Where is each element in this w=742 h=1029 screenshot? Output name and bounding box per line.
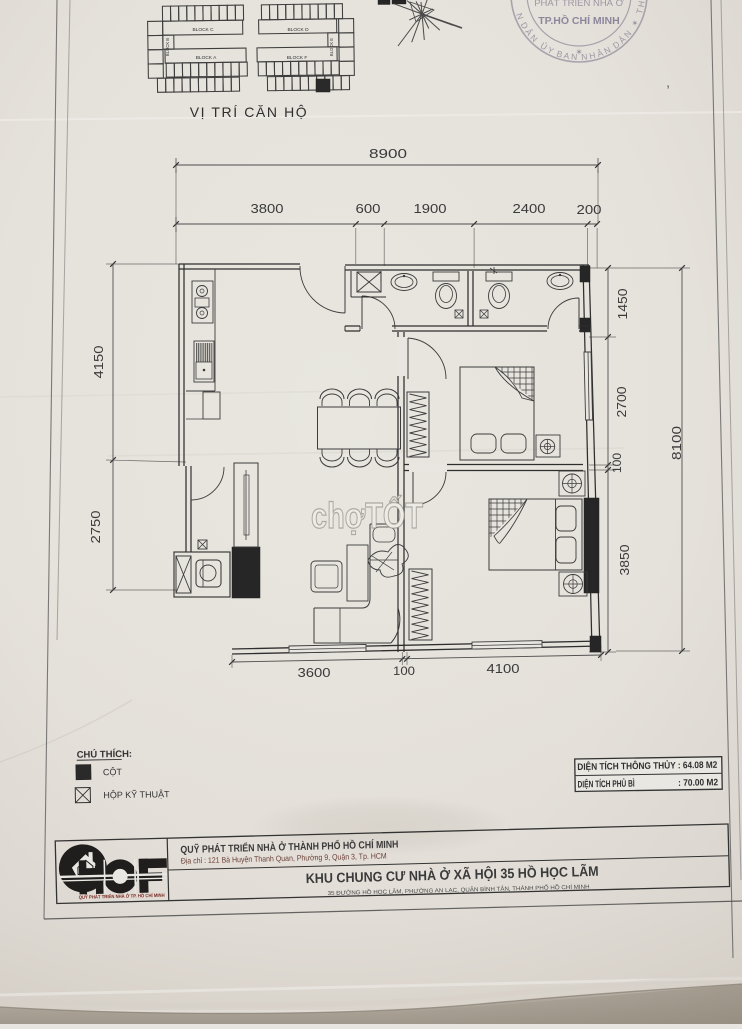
svg-text:8100: 8100 bbox=[669, 426, 684, 460]
svg-text:2400: 2400 bbox=[513, 201, 546, 216]
svg-text:3800: 3800 bbox=[251, 201, 284, 216]
svg-text:BLOCK F: BLOCK F bbox=[287, 55, 308, 61]
svg-text:’: ’ bbox=[666, 82, 669, 98]
svg-text:BLOCK E: BLOCK E bbox=[329, 38, 334, 56]
svg-text:TP.HỒ CHÍ MINH: TP.HỒ CHÍ MINH bbox=[538, 14, 619, 27]
svg-text:✶: ✶ bbox=[575, 47, 583, 57]
svg-text:: 70.00 M2: : 70.00 M2 bbox=[678, 776, 718, 788]
svg-text:4150: 4150 bbox=[91, 346, 106, 379]
svg-text:8900: 8900 bbox=[369, 146, 407, 161]
svg-text:2700: 2700 bbox=[615, 386, 629, 417]
svg-text:BLOCK A: BLOCK A bbox=[196, 55, 217, 61]
svg-text:BLOCK B: BLOCK B bbox=[165, 38, 170, 56]
svg-text:100: 100 bbox=[393, 664, 415, 678]
svg-text:1450: 1450 bbox=[616, 288, 630, 319]
svg-text:CHÚ THÍCH:: CHÚ THÍCH: bbox=[77, 748, 133, 761]
svg-text:3850: 3850 bbox=[618, 544, 632, 575]
svg-text:DIỆN TÍCH THÔNG THỦY : 64.08 M: DIỆN TÍCH THÔNG THỦY : 64.08 M2 bbox=[577, 759, 717, 772]
svg-text:VỊ TRÍ CĂN HỘ: VỊ TRÍ CĂN HỘ bbox=[190, 104, 309, 120]
svg-text:1900: 1900 bbox=[414, 201, 447, 216]
svg-text:4100: 4100 bbox=[487, 661, 520, 676]
svg-text:600: 600 bbox=[356, 201, 381, 216]
svg-text:HỘP KỸ THUẬT: HỘP KỸ THUẬT bbox=[103, 789, 170, 800]
svg-text:PHÁT TRIỂN NHÀ Ở: PHÁT TRIỂN NHÀ Ở bbox=[534, 0, 624, 9]
svg-text:100: 100 bbox=[612, 453, 624, 473]
svg-text:BLOCK C: BLOCK C bbox=[192, 27, 214, 33]
svg-text:CỘT: CỘT bbox=[103, 767, 123, 777]
svg-text:BLOCK D: BLOCK D bbox=[287, 27, 309, 33]
svg-text:2750: 2750 bbox=[88, 511, 103, 544]
svg-text:DIỆN TÍCH PHỦ BÌ: DIỆN TÍCH PHỦ BÌ bbox=[578, 778, 635, 790]
svg-text:3600: 3600 bbox=[298, 665, 331, 680]
svg-text:chợTỐT: chợTỐT bbox=[311, 494, 423, 536]
